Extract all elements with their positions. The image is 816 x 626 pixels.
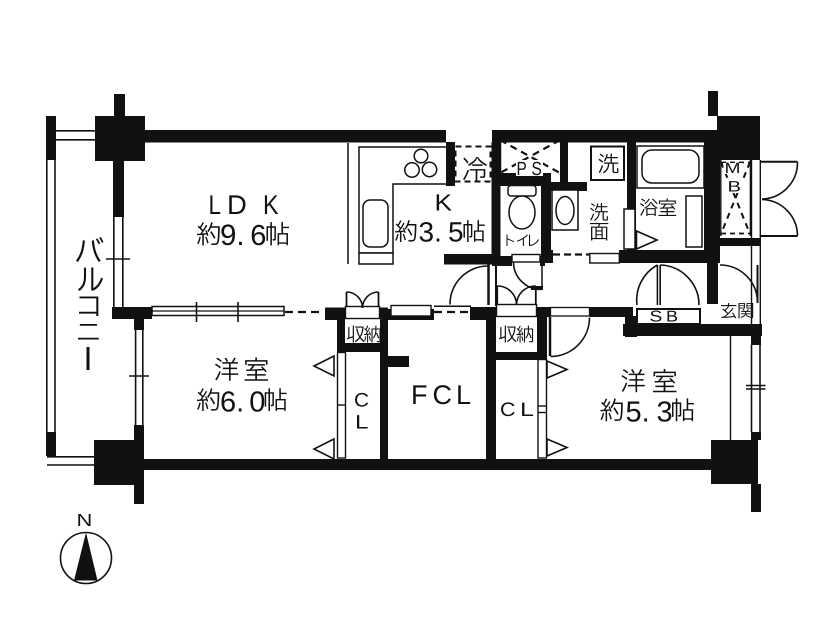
svg-text:5.: 5.	[626, 397, 650, 429]
svg-text:S: S	[532, 159, 542, 180]
svg-text:6.: 6.	[220, 386, 244, 418]
svg-text:C: C	[500, 399, 516, 421]
svg-text:D: D	[227, 190, 247, 220]
svg-text:S: S	[650, 309, 663, 326]
svg-text:0: 0	[249, 386, 265, 418]
svg-text:N: N	[77, 510, 93, 530]
svg-text:9.: 9.	[220, 219, 245, 252]
svg-text:3.: 3.	[419, 217, 442, 248]
svg-text:B: B	[728, 179, 742, 196]
svg-text:L: L	[520, 399, 534, 421]
svg-text:6: 6	[250, 220, 266, 252]
svg-text:C: C	[354, 390, 369, 412]
svg-text:K: K	[263, 190, 279, 220]
svg-text:B: B	[666, 309, 678, 326]
svg-text:P: P	[517, 159, 527, 180]
svg-text:F: F	[411, 380, 428, 410]
svg-text:K: K	[435, 190, 453, 216]
svg-text:3: 3	[657, 397, 673, 429]
svg-text:5: 5	[448, 217, 464, 248]
svg-text:L: L	[355, 411, 369, 433]
svg-text:L: L	[456, 380, 471, 410]
svg-text:M: M	[725, 160, 741, 177]
svg-text:L: L	[209, 190, 222, 220]
svg-text:C: C	[433, 380, 453, 410]
